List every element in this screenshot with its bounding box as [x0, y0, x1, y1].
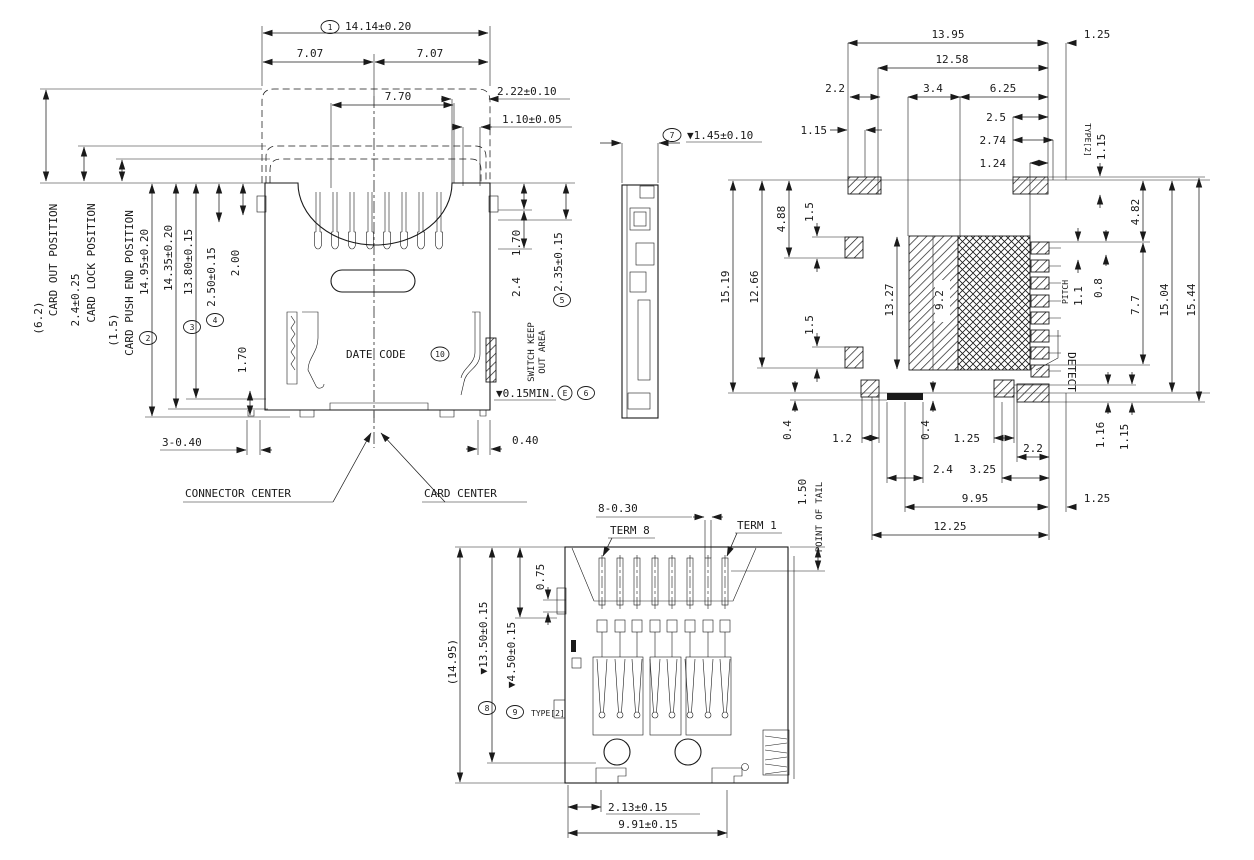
dim-1-16: 1.16 — [1094, 422, 1107, 449]
dim-1-70-left: 1.70 — [236, 347, 249, 374]
dim-1-25-mid: 1.25 — [954, 432, 981, 445]
pad-left-low — [845, 347, 863, 368]
dim-2-4: 2.4 — [933, 463, 953, 476]
dim-total-width: 14.14±0.20 — [345, 20, 411, 33]
connector-center-label: CONNECTOR CENTER — [185, 487, 291, 500]
dim-1-5-upper: 1.5 — [803, 202, 816, 222]
dim-9-2: 9.2 — [933, 290, 946, 310]
callout-1: 1 — [328, 23, 333, 32]
dim-13-80: 13.80±0.15 — [182, 229, 195, 295]
dim-12-58: 12.58 — [935, 53, 968, 66]
card-push-label: CARD PUSH END POSITION — [123, 210, 136, 356]
callout-9: 9 — [513, 708, 518, 717]
dim-1-15-bottom-right: 1.15 — [1118, 424, 1131, 451]
dim-2-74: 2.74 — [980, 134, 1007, 147]
dim-7-70: 7.70 — [385, 90, 412, 103]
dim-9-95: 9.95 — [962, 492, 989, 505]
solder-bar — [887, 393, 923, 400]
pad-bottom-left — [861, 380, 879, 397]
dim-12-25: 12.25 — [933, 520, 966, 533]
dim-4-88: 4.88 — [775, 206, 788, 233]
date-code-label: DATE CODE — [346, 348, 406, 361]
pad-bottom-right — [1017, 384, 1049, 402]
dim-1-25-bottom: 1.25 — [1084, 492, 1111, 505]
dim-0-4-mid: 0.4 — [919, 420, 932, 440]
pad-top-left — [848, 177, 881, 194]
pad-left-mid — [845, 237, 863, 258]
dim-2-2-top: 2.2 — [825, 82, 845, 95]
connector-drawing: 1 14.14±0.20 7.07 7.07 7.70 2.22±0.10 1.… — [0, 0, 1254, 855]
mark-fill — [571, 640, 576, 652]
point-of-tail-label: POINT OF TAIL — [815, 482, 825, 552]
keepout-hatch-right — [958, 236, 1030, 370]
switch-keep-out-line1: SWITCH KEEP — [527, 322, 537, 382]
dim-1-70-right: 1.70 — [510, 230, 523, 257]
callout-6: 6 — [584, 389, 589, 398]
type2-label-bottom: TYPE[2] — [531, 709, 565, 718]
pad-bottom-mid — [994, 380, 1014, 397]
term8-label: TERM 8 — [610, 524, 650, 537]
callout-5: 5 — [560, 296, 565, 305]
flatness-note: ▼0.15MIN. — [496, 387, 556, 400]
dim-3-4: 3.4 — [923, 82, 943, 95]
switch-keep-out-line2: OUT AREA — [538, 330, 548, 374]
dim-15-19: 15.19 — [719, 270, 732, 303]
dim-14-35: 14.35±0.20 — [162, 225, 175, 291]
type2-label: TYPE[2] — [1083, 123, 1092, 157]
card-lock-label: CARD LOCK POSITION — [85, 203, 98, 322]
dim-7-7: 7.7 — [1129, 295, 1142, 315]
dim-2-13: 2.13±0.15 — [608, 801, 668, 814]
dim-1-10: 1.10±0.05 — [502, 113, 562, 126]
callout-7: 7 — [670, 131, 675, 140]
dim-13-95: 13.95 — [931, 28, 964, 41]
drawing-sheet: 1 14.14±0.20 7.07 7.07 7.70 2.22±0.10 1.… — [0, 0, 1254, 855]
dim-1-1: 1.1 — [1072, 286, 1085, 306]
dim-1-50: 1.50 — [796, 479, 809, 506]
callout-4: 4 — [213, 316, 218, 325]
dim-2-35: 2.35±0.15 — [552, 232, 565, 292]
callout-10: 10 — [435, 350, 445, 359]
callout-8: 8 — [485, 704, 490, 713]
dim-1-2: 1.2 — [832, 432, 852, 445]
card-out-value: (6.2) — [32, 301, 45, 334]
dim-13-50: ▼13.50±0.15 — [477, 602, 490, 675]
dim-0-40: 0.40 — [512, 434, 539, 447]
dim-1-25-top: 1.25 — [1084, 28, 1111, 41]
detect-label: DETECT — [1065, 352, 1078, 392]
card-out-label: CARD OUT POSITION — [47, 204, 60, 317]
dim-2-2-bottom: 2.2 — [1023, 442, 1043, 455]
dim-4-50: ▼4.50±0.15 — [505, 622, 518, 688]
dim-4-82: 4.82 — [1129, 199, 1142, 226]
dim-7-07-left: 7.07 — [297, 47, 324, 60]
dim-1-15-right: 1.15 — [1095, 134, 1108, 161]
datum-e: E — [563, 389, 568, 398]
dim-14-95: 14.95±0.20 — [138, 229, 151, 295]
dim-6-25: 6.25 — [990, 82, 1017, 95]
dim-12-66: 12.66 — [748, 270, 761, 303]
card-center-label: CARD CENTER — [424, 487, 497, 500]
card-lock-value: 2.4±0.25 — [69, 274, 82, 327]
pitch-label: PITCH — [1061, 280, 1070, 304]
dim-14-95-ref: (14.95) — [446, 639, 459, 685]
dim-1-5-lower: 1.5 — [803, 315, 816, 335]
dim-3-040: 3-0.40 — [162, 436, 202, 449]
card-push-value: (1.5) — [107, 313, 120, 346]
callout-3: 3 — [190, 323, 195, 332]
dim-1-24: 1.24 — [980, 157, 1007, 170]
switch-area-hatch — [486, 338, 496, 382]
term1-label: TERM 1 — [737, 519, 777, 532]
dim-2-5: 2.5 — [986, 111, 1006, 124]
dim-0-75: 0.75 — [534, 564, 547, 591]
dim-0-4-left: 0.4 — [781, 420, 794, 440]
dim-15-04: 15.04 — [1158, 283, 1171, 316]
dim-1-45: ▼1.45±0.10 — [687, 129, 753, 142]
dim-15-44: 15.44 — [1185, 283, 1198, 316]
pad-top-right — [1013, 177, 1048, 194]
dim-2-50: 2.50±0.15 — [205, 247, 218, 307]
dim-2-22: 2.22±0.10 — [497, 85, 557, 98]
dim-3-25: 3.25 — [970, 463, 997, 476]
dim-8-030: 8-0.30 — [598, 502, 638, 515]
dim-0-8: 0.8 — [1092, 278, 1105, 298]
dim-2-00: 2.00 — [229, 250, 242, 277]
dim-13-27: 13.27 — [883, 283, 896, 316]
dim-9-91: 9.91±0.15 — [618, 818, 678, 831]
dim-1-15-top-left: 1.15 — [801, 124, 828, 137]
callout-2: 2 — [146, 334, 151, 343]
dim-2-4-switch: 2.4 — [510, 277, 523, 297]
dim-7-07-right: 7.07 — [417, 47, 444, 60]
